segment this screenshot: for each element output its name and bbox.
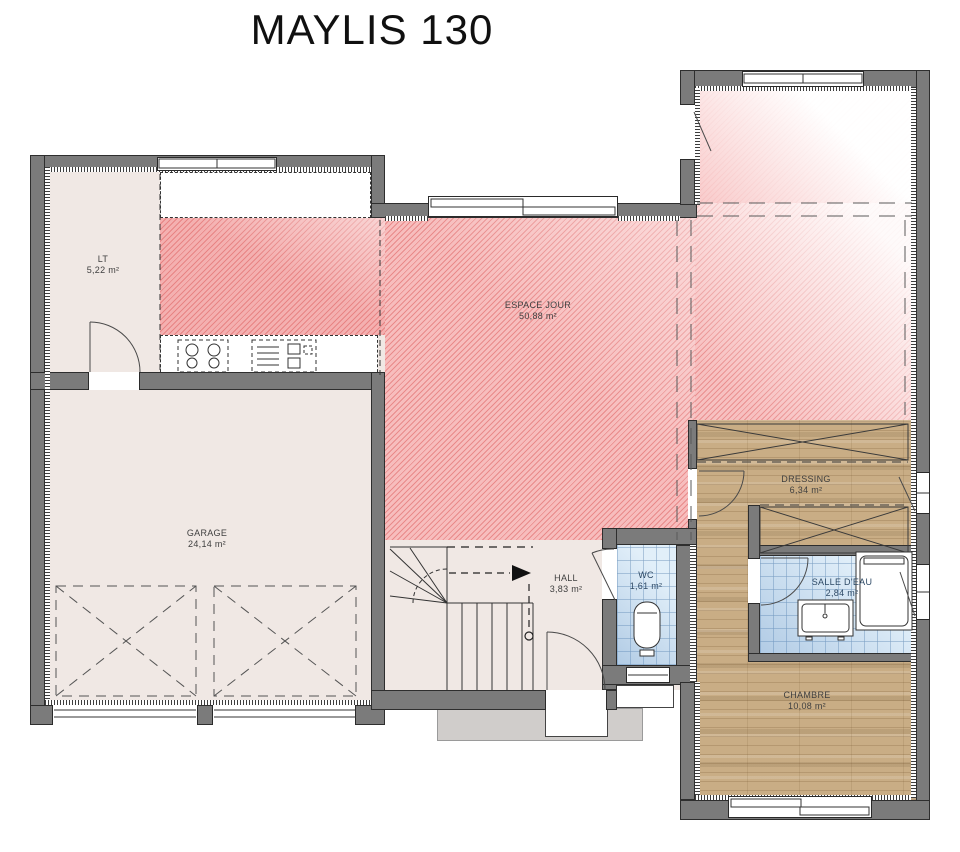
- room-label-garage: GARAGE 24,14 m²: [187, 528, 227, 550]
- insulation-strip: [690, 545, 696, 682]
- insulation-strip: [695, 682, 700, 795]
- wall-segment: [680, 682, 695, 800]
- entrance-porch: [437, 708, 643, 741]
- wall-segment: [30, 372, 385, 390]
- door-opening-wc: [602, 548, 617, 600]
- window-lt: [157, 157, 277, 171]
- wall-segment: [748, 545, 916, 556]
- door-opening-salle-deau: [748, 558, 760, 604]
- window-salle-deau: [916, 564, 930, 620]
- room-area: 3,83 m²: [550, 584, 583, 595]
- insulation-strip: [911, 88, 916, 798]
- floor-plan: LT 5,22 m² ESPACE JOUR 50,88 m² GARAGE 2…: [0, 0, 960, 852]
- window-dressing: [916, 472, 930, 514]
- room-label-wc: WC 1,61 m²: [630, 570, 663, 592]
- room-label-hall: HALL 3,83 m²: [550, 573, 583, 595]
- window-upper-room: [742, 71, 864, 87]
- room-label-chambre: CHAMBRE 10,08 m²: [783, 690, 830, 712]
- door-opening-dressing: [688, 468, 697, 520]
- floor-wc: [617, 545, 676, 665]
- room-area: 6,34 m²: [781, 485, 830, 496]
- window-espace-jour: [428, 196, 618, 217]
- insulation-strip: [45, 167, 50, 705]
- wall-segment: [916, 70, 930, 820]
- window-wc: [626, 667, 670, 683]
- kitchen-counter-bottom: [160, 335, 378, 377]
- room-area: 5,22 m²: [87, 265, 120, 276]
- room-label-espace-jour: ESPACE JOUR 50,88 m²: [505, 300, 571, 322]
- room-label-salle-deau: SALLE D'EAU 2,84 m²: [812, 577, 873, 599]
- garage-door-opening: [212, 705, 356, 725]
- room-area: 24,14 m²: [187, 539, 227, 550]
- room-area: 10,08 m²: [783, 701, 830, 712]
- insulation-strip: [618, 216, 680, 221]
- insulation-strip: [385, 216, 428, 221]
- room-name: DRESSING: [781, 474, 830, 485]
- room-name: SALLE D'EAU: [812, 577, 873, 588]
- door-opening-lt: [88, 372, 140, 390]
- room-name: LT: [87, 254, 120, 265]
- room-label-dressing: DRESSING 6,34 m²: [781, 474, 830, 496]
- wall-segment: [748, 653, 916, 662]
- room-name: HALL: [550, 573, 583, 584]
- floor-kitchen: [160, 218, 385, 335]
- garage-door-opening: [52, 705, 198, 725]
- room-name: CHAMBRE: [783, 690, 830, 701]
- wall-segment: [371, 372, 385, 710]
- floor-espace-upper-room: [695, 88, 916, 203]
- insulation-strip: [695, 88, 700, 205]
- floor-espace-right: [695, 203, 916, 420]
- room-name: WC: [630, 570, 663, 581]
- floor-espace-jour: [385, 218, 697, 540]
- room-name: ESPACE JOUR: [505, 300, 571, 311]
- kitchen-counter-top: [160, 172, 371, 218]
- room-label-lt: LT 5,22 m²: [87, 254, 120, 276]
- room-area: 2,84 m²: [812, 588, 873, 599]
- room-area: 1,61 m²: [630, 581, 663, 592]
- room-name: GARAGE: [187, 528, 227, 539]
- wall-segment: [30, 155, 45, 725]
- door-opening-upper-room: [680, 104, 695, 160]
- plan-title: MAYLIS 130: [251, 6, 494, 54]
- wc-porch: [614, 685, 674, 708]
- window-chambre: [728, 796, 872, 818]
- entrance-doormat: [545, 708, 608, 737]
- floor-salle-deau: [760, 556, 911, 655]
- entrance-door-opening: [545, 690, 607, 710]
- room-area: 50,88 m²: [505, 311, 571, 322]
